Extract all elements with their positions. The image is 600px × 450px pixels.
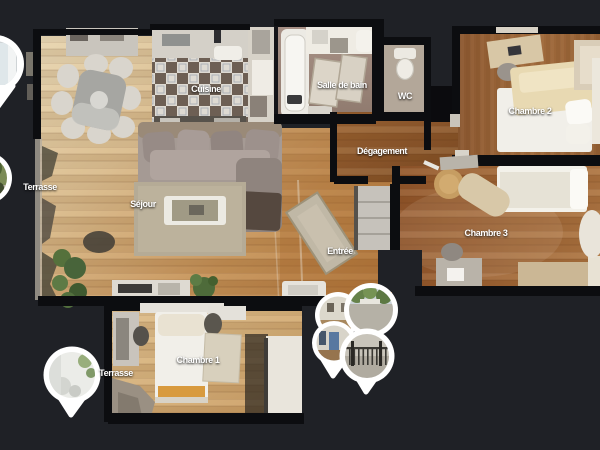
svg-text:Chambre 2: Chambre 2 xyxy=(509,106,552,116)
svg-text:Salle de bain: Salle de bain xyxy=(317,80,367,90)
svg-text:Terrasse: Terrasse xyxy=(23,182,57,192)
svg-text:Chambre 3: Chambre 3 xyxy=(465,228,508,238)
svg-text:Terrasse: Terrasse xyxy=(99,368,133,378)
svg-text:Chambre 1: Chambre 1 xyxy=(177,355,220,365)
svg-text:Cuisine: Cuisine xyxy=(191,84,221,94)
svg-text:Entrée: Entrée xyxy=(327,246,353,256)
svg-text:Séjour: Séjour xyxy=(130,199,157,209)
svg-text:Dégagement: Dégagement xyxy=(357,146,407,156)
svg-text:WC: WC xyxy=(398,91,413,101)
